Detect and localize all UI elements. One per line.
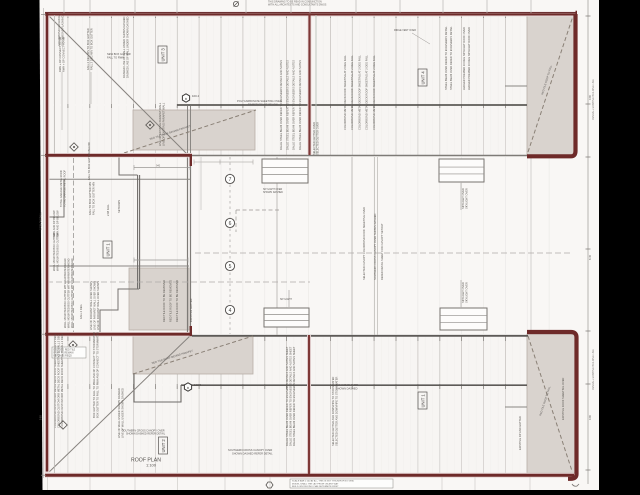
svg-text:SELECTED GUTTER OVER: SELECTED GUTTER OVER (316, 122, 320, 155)
svg-text:COLORBOND METAL DECK ROOF SHEE: COLORBOND METAL DECK ROOF SHEETING AT 2 … (372, 55, 376, 130)
svg-text:2.98 FALL: 2.98 FALL (106, 204, 110, 216)
svg-text:POLYCARBONATE SHEETING OVER: POLYCARBONATE SHEETING OVER (237, 99, 282, 103)
svg-text:FALL TO BOX GUTTER BELOW: FALL TO BOX GUTTER BELOW (87, 142, 91, 180)
svg-text:7: 7 (229, 177, 232, 183)
svg-text:5: 5 (229, 264, 232, 270)
svg-text:WITH ALL ARCHITECTS AND CONSUL: WITH ALL ARCHITECTS AND CONSULTANTS DWGS (268, 3, 327, 6)
svg-text:SHOWN DASHED REFER DETAIL: SHOWN DASHED REFER DETAIL (126, 433, 166, 436)
svg-text:SELECTED GUTTER AND DOWNPIPE T: SELECTED GUTTER AND DOWNPIPE TO STORMWAT… (331, 377, 335, 446)
svg-text:9.80: 9.80 (40, 415, 43, 420)
svg-text:RED TILE ROOF TO BE REMOVED: RED TILE ROOF TO BE REMOVED (169, 280, 173, 322)
svg-text:COLORBOND CUSTOM ORB METAL DEC: COLORBOND CUSTOM ORB METAL DECK ROOF SHE… (53, 334, 57, 428)
svg-text:MODEL SHALL THE LAY PRIOR ON A: MODEL SHALL THE LAY PRIOR ON ANY WAY (292, 482, 339, 485)
svg-text:DALLE STEEL BEAM OVER REFER TO: DALLE STEEL BEAM OVER REFER TO ENGINEERS… (279, 60, 283, 150)
svg-text:LINE OF PARAPET WALL OVER SHOW: LINE OF PARAPET WALL OVER SHOWN (96, 281, 100, 330)
svg-text:COLORBOND METAL DECK ROOF SHEE: COLORBOND METAL DECK ROOF SHEETING AT 2 … (350, 55, 354, 130)
svg-text:RED TILE ROOF TO BE REMOVED: RED TILE ROOF TO BE REMOVED (162, 280, 166, 322)
svg-text:940: 940 (156, 164, 161, 167)
svg-text:LINE OF WALL UNDER SHOWN DASHE: LINE OF WALL UNDER SHOWN DASHED (117, 388, 121, 438)
svg-text:DALLE STEEL BEAM OVER REFER TO: DALLE STEEL BEAM OVER REFER TO ENGINEERS… (289, 346, 293, 446)
svg-text:SHOWN DASHED: SHOWN DASHED (336, 387, 358, 391)
svg-text:FALL TO BOX GUTTER MIN: FALL TO BOX GUTTER MIN (88, 182, 92, 215)
svg-text:WALL MOUNTED BOX GUTTER: WALL MOUNTED BOX GUTTER (56, 233, 60, 271)
svg-text:SELECTED CANOPY COLORBOND ROOF: SELECTED CANOPY COLORBOND ROOF SHEETING … (362, 207, 366, 280)
svg-text:REFER DETAIL SHEET FOR CANOPY: REFER DETAIL SHEET FOR CANOPY SETOUT (380, 223, 384, 280)
svg-text:SKYLIGHT OVER: SKYLIGHT OVER (464, 282, 468, 303)
svg-text:SKYLIGHT OVER: SKYLIGHT OVER (461, 188, 465, 209)
svg-text:17.25 OVERALL: 17.25 OVERALL (40, 212, 43, 230)
svg-text:RWH + DP CONNECT TO SW: RWH + DP CONNECT TO SW (62, 36, 66, 72)
svg-text:SKYLIGHT: SKYLIGHT (280, 298, 292, 301)
svg-text:WALL MOUNTED BOX GUTTER WITH R: WALL MOUNTED BOX GUTTER WITH RAINWATER H… (67, 258, 71, 328)
svg-text:FALL 2 DEG: FALL 2 DEG (79, 305, 83, 319)
svg-text:EXISTING ROOF SHEETING OVER: EXISTING ROOF SHEETING OVER (561, 378, 565, 420)
svg-text:FALL 2 DEG MIN TO BOX GUTTER: FALL 2 DEG MIN TO BOX GUTTER (86, 28, 90, 70)
svg-text:DALLE STEEL BEAM OVER REFER TO: DALLE STEEL BEAM OVER REFER TO ENGINEERS… (285, 346, 289, 446)
svg-text:OVERALL EXISTING BUILDING LINE: OVERALL EXISTING BUILDING LINE (592, 79, 595, 120)
svg-text:UNIT 3: UNIT 3 (161, 48, 166, 62)
svg-text:1:100: 1:100 (146, 463, 157, 468)
svg-text:DALLE STEEL BEAM OVER REFER TO: DALLE STEEL BEAM OVER REFER TO ENGINEERS… (298, 60, 302, 150)
svg-text:EXISTING GUTTER: EXISTING GUTTER (189, 298, 193, 322)
svg-text:DASHED LINE OF WALL UNDER SHOW: DASHED LINE OF WALL UNDER SHOWN DASHED (122, 17, 126, 78)
svg-text:DALLE STEEL BEAM OVER REFER TO: DALLE STEEL BEAM OVER REFER TO ENGINEERS… (285, 60, 289, 150)
svg-text:RWH + DP CONNECT TO SW: RWH + DP CONNECT TO SW (58, 36, 62, 72)
svg-text:FALL TO RWH: FALL TO RWH (107, 56, 124, 60)
svg-text:SOUTHERN CROSS CANOPY OVER: SOUTHERN CROSS CANOPY OVER (228, 448, 272, 452)
svg-text:LINE OF PARAPET WALL OVER SHOW: LINE OF PARAPET WALL OVER SHOWN (89, 281, 93, 330)
svg-text:TIMBER FRAME BELOW: TIMBER FRAME BELOW (248, 103, 278, 107)
svg-text:LINE OF PARAPET WALL OVER SHOW: LINE OF PARAPET WALL OVER SHOWN (93, 281, 97, 330)
svg-text:SCALE BAR 1:100 AT A1 - THIS I: SCALE BAR 1:100 AT A1 - THIS IS NOT THIC… (292, 480, 354, 483)
svg-text:SOUTHERN CROSS CANOPY OVER SHO: SOUTHERN CROSS CANOPY OVER SHOWN DASHED (373, 213, 377, 280)
svg-text:UNIT 4: UNIT 4 (421, 71, 426, 85)
svg-text:STEEL BEAM OVER REFER TO ENGIN: STEEL BEAM OVER REFER TO ENGINEERS DETAI… (449, 26, 453, 90)
svg-text:BUILD. BN SW FINO CIAS DETERMI: BUILD. BN SW FINO CIAS DETERMITE FIRST (292, 485, 339, 488)
svg-text:RED TILE ROOF TO BE REMOVED: RED TILE ROOF TO BE REMOVED (175, 280, 179, 322)
svg-text:SETDOWN: SETDOWN (117, 200, 121, 213)
svg-text:SHOWN DASHED: SHOWN DASHED (263, 191, 283, 194)
svg-text:BOX GUTTER TO FALL TO RWH AND: BOX GUTTER TO FALL TO RWH AND DP CONNECT… (96, 332, 100, 418)
svg-text:SHOWN DASHED REFER DETAIL: SHOWN DASHED REFER DETAIL (232, 452, 273, 456)
svg-text:RIDGE VENT OVER: RIDGE VENT OVER (394, 29, 416, 32)
svg-text:UNIT 2: UNIT 2 (161, 439, 166, 453)
svg-text:TOTAL GARAGE METAL ROOF: TOTAL GARAGE METAL ROOF (59, 169, 63, 207)
svg-text:100.3: 100.3 (194, 383, 201, 387)
svg-text:LINE OF EXISTING PARAPET WALL: LINE OF EXISTING PARAPET WALL (158, 102, 162, 146)
svg-text:EXISTING DP AND GUTTER: EXISTING DP AND GUTTER (518, 416, 522, 450)
svg-text:TOTAL GARAGE METAL ROOF: TOTAL GARAGE METAL ROOF (63, 169, 67, 207)
svg-text:SKYLIGHT OVER: SKYLIGHT OVER (464, 188, 468, 209)
svg-text:DASHED LINE OF WALL UNDER SHOW: DASHED LINE OF WALL UNDER SHOWN DASHED (126, 17, 130, 78)
svg-text:WALL MOUNTED BOX GUTTER WITH R: WALL MOUNTED BOX GUTTER WITH RAINWATER H… (70, 258, 74, 328)
svg-text:COLORBOND METAL DECK ROOF SHEE: COLORBOND METAL DECK ROOF SHEETING AT 2 … (357, 55, 361, 130)
svg-text:DALLE STEEL BEAM OVER REFER TO: DALLE STEEL BEAM OVER REFER TO ENGINEERS… (292, 60, 296, 150)
svg-text:WALL MOUNTED BOX GUTTER: WALL MOUNTED BOX GUTTER (52, 233, 56, 271)
svg-text:COLORBOND METAL DECK ROOF SHEE: COLORBOND METAL DECK ROOF SHEETING AT 2 … (365, 55, 369, 130)
svg-text:9.80: 9.80 (588, 414, 592, 420)
svg-text:SKYLIGHT OVER: SKYLIGHT OVER (461, 282, 465, 303)
svg-text:LINE OF EXISTING PARAPET WALL: LINE OF EXISTING PARAPET WALL (162, 102, 166, 146)
svg-text:SELECTED GUTTER OVER: SELECTED GUTTER OVER (312, 122, 316, 155)
svg-text:6: 6 (229, 221, 232, 227)
svg-text:▲: ▲ (184, 97, 187, 101)
svg-text:BULKHEAD OVER: BULKHEAD OVER (336, 383, 358, 387)
svg-text:UNIT 1: UNIT 1 (421, 394, 426, 408)
svg-text:▲: ▲ (186, 386, 189, 390)
svg-text:COLORBOND CUSTOM ORB METAL DEC: COLORBOND CUSTOM ORB METAL DECK ROOF SHE… (57, 334, 61, 428)
svg-text:UNIT 1: UNIT 1 (106, 243, 111, 257)
svg-text:COLORBOND CUSTOM ORB METAL DEC: COLORBOND CUSTOM ORB METAL DECK ROOF SHE… (60, 334, 64, 428)
svg-text:100.4: 100.4 (192, 94, 199, 98)
svg-text:NEW BOX GUTTER: NEW BOX GUTTER (107, 52, 131, 56)
svg-text:BOX GUTTER TO FALL TO RWH AND: BOX GUTTER TO FALL TO RWH AND DP CONNECT… (92, 332, 96, 418)
svg-text:LEDGER PREMIER 10 DEG SKYLIGHT: LEDGER PREMIER 10 DEG SKYLIGHT ROOF OVER (467, 27, 471, 90)
svg-text:DALLE STEEL BEAM OVER REFER TO: DALLE STEEL BEAM OVER REFER TO ENGINEERS… (292, 346, 296, 446)
svg-text:OVERALL EXISTING BUILDING LINE: OVERALL EXISTING BUILDING LINE (592, 349, 595, 390)
svg-text:FALL 2 DEG MIN TO BOX GUTTER: FALL 2 DEG MIN TO BOX GUTTER (90, 28, 94, 70)
svg-text:STEEL BEAM OVER REFER TO ENGIN: STEEL BEAM OVER REFER TO ENGINEERS DETAI… (444, 26, 448, 90)
svg-text:8.45: 8.45 (588, 254, 592, 260)
svg-text:FALL TO BOX GUTTER MIN: FALL TO BOX GUTTER MIN (92, 182, 96, 215)
svg-text:4: 4 (229, 308, 232, 314)
svg-text:WALL MOUNTED BOX GUTTER WITH R: WALL MOUNTED BOX GUTTER WITH RAINWATER H… (63, 258, 67, 328)
svg-text:LEDGER PREMIER 10 DEG SKYLIGHT: LEDGER PREMIER 10 DEG SKYLIGHT ROOF OVER (462, 27, 466, 90)
svg-text:COLORBOND METAL DECK ROOF SHEE: COLORBOND METAL DECK ROOF SHEETING AT 2 … (343, 55, 347, 130)
